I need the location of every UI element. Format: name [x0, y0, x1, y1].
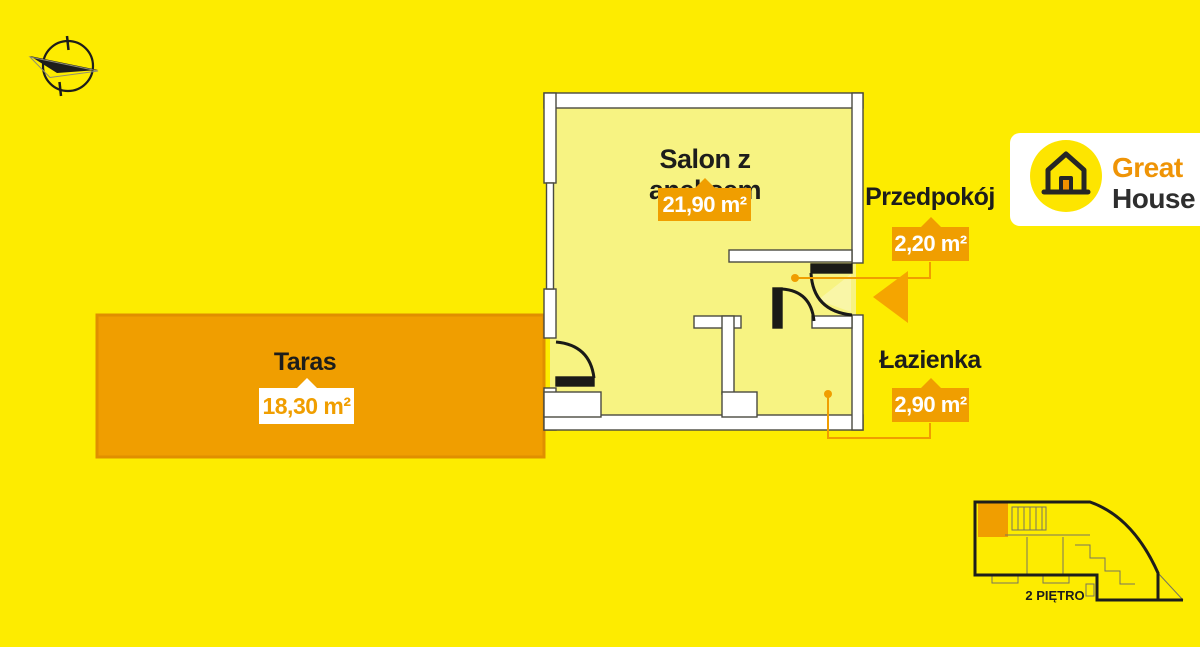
badge-pointer-icon — [920, 378, 942, 389]
room-label-taras: Taras — [230, 348, 380, 377]
logo-word-house: House — [1112, 183, 1195, 214]
graphics-layer — [0, 0, 1200, 647]
area-badge-lazienka: 2,90 m² — [892, 388, 969, 422]
house-icon — [1030, 140, 1102, 212]
badge-pointer-icon — [920, 217, 942, 228]
wall-left-a — [544, 93, 556, 183]
terrace-area — [97, 315, 544, 457]
area-value-taras: 18,30 m² — [262, 393, 350, 419]
wall-hall-top — [729, 250, 852, 262]
area-value-lazienka: 2,90 m² — [894, 392, 966, 417]
area-value-salon: 21,90 m² — [662, 192, 746, 217]
pier-bath — [722, 392, 757, 417]
area-value-przedpokoj: 2,20 m² — [894, 231, 966, 256]
room-label-przedpokoj: Przedpokój — [855, 183, 1005, 212]
wall-left-b — [544, 289, 556, 338]
leader-dot-przedpokoj — [791, 274, 799, 282]
wall-top — [544, 93, 863, 108]
room-label-lazienka: Łazienka — [855, 346, 1005, 375]
leader-dot-lazienka — [824, 390, 832, 398]
logo-word-great: Great — [1112, 152, 1195, 183]
window-left — [547, 183, 554, 289]
location-minimap — [975, 502, 1183, 600]
minimap-floor-label: 2 PIĘTRO — [1015, 588, 1095, 603]
minimap-apartment-highlight — [978, 502, 1008, 537]
wall-bath-top-right — [812, 316, 852, 328]
compass-icon — [30, 36, 98, 96]
badge-pointer-icon — [296, 378, 318, 389]
area-badge-taras: 18,30 m² — [259, 388, 354, 424]
badge-pointer-icon — [694, 178, 716, 189]
greathouse-logo: Great House — [1010, 133, 1200, 226]
wall-right-a — [852, 93, 863, 263]
wall-divider — [722, 316, 734, 394]
pier-bottom-left — [544, 392, 601, 417]
area-badge-salon: 21,90 m² — [658, 188, 751, 221]
logo-wordmark: Great House — [1112, 152, 1195, 214]
logo-circle — [1030, 140, 1102, 212]
floorplan-infographic: Salon z aneksem Przedpokój Łazienka Tara… — [0, 0, 1200, 647]
area-badge-przedpokoj: 2,20 m² — [892, 227, 969, 261]
